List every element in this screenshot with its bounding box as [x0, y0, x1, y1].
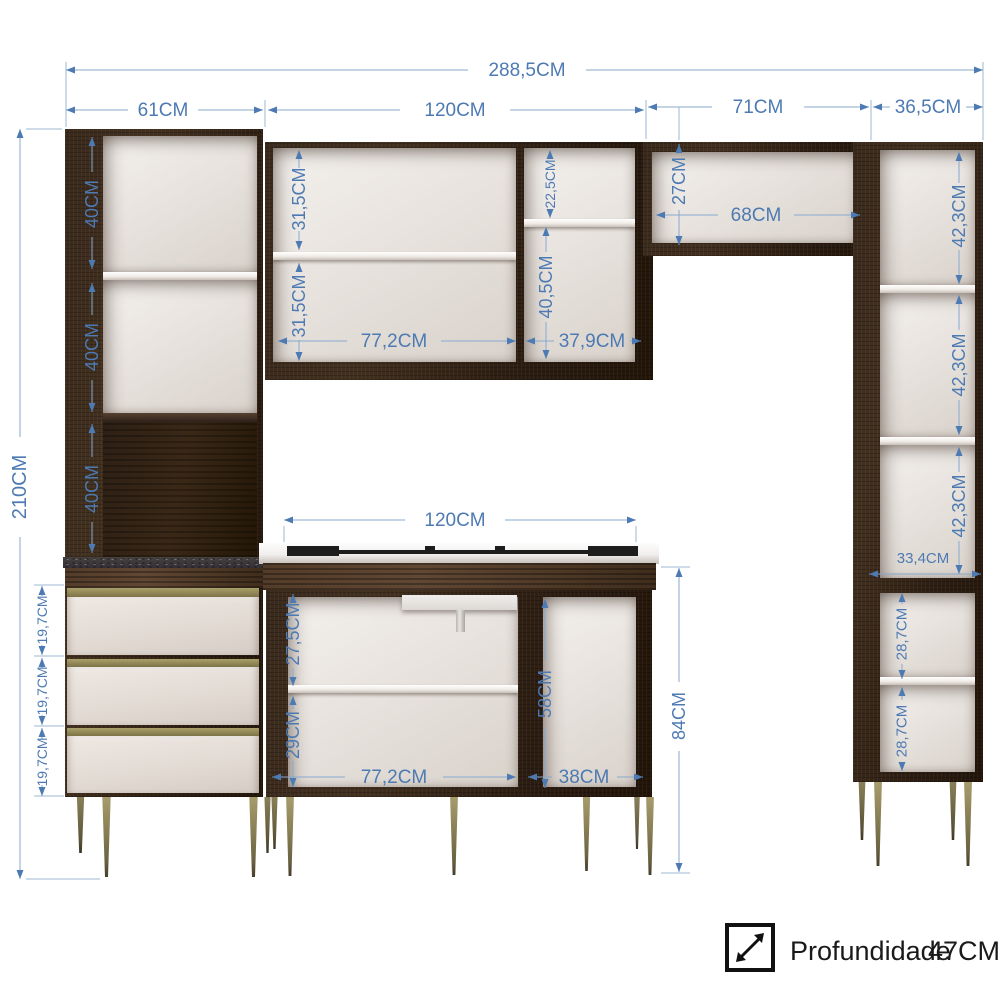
dim-base-width: 120CM: [284, 510, 636, 542]
dim-base-total-height: 84CM: [661, 567, 690, 873]
dim-base-left-width: 77,2CM: [272, 767, 516, 788]
dim-drawer-1-label: 19,7CM: [34, 595, 50, 644]
dim-total-width: 288,5CM: [66, 60, 983, 140]
depth-label: Profundidade: [790, 936, 951, 967]
dim-bridge-height: 27CM: [669, 107, 689, 245]
dim-left-tower-width-label: 61CM: [138, 100, 189, 121]
dim-left-section-2: 40CM: [82, 283, 102, 412]
dim-right-tower-width: 36,5CM: [873, 97, 983, 118]
dim-bridge-width-label: 71CM: [733, 97, 784, 118]
dim-upper-right-top: 22,5CM: [542, 150, 558, 218]
dim-bridge-height-label: 27CM: [669, 157, 689, 205]
dim-upper-right-width: 37,9CM: [526, 331, 641, 352]
dim-upper-right-width-label: 37,9CM: [559, 331, 626, 352]
dim-total-height-label: 210CM: [9, 455, 31, 519]
dim-right-inner-width: 33,4CM: [869, 550, 981, 574]
dim-base-total-height-label: 84CM: [669, 692, 689, 740]
dim-total-width-label: 288,5CM: [488, 60, 565, 81]
dim-upper-right-bottom-label: 40,5CM: [536, 255, 556, 318]
dim-upper-left-top: 31,5CM: [289, 150, 309, 250]
dim-upper-left-width: 77,2CM: [278, 331, 516, 352]
dim-upper-right-top-label: 22,5CM: [542, 159, 558, 208]
dim-base-left-width-label: 77,2CM: [361, 767, 428, 788]
cabinet-dimension-diagram: 288,5CM 61CM 120CM 71CM 36,5CM: [0, 0, 1000, 1000]
dim-drawer-3-label: 19,7CM: [34, 737, 50, 786]
dim-upper-left-width-label: 77,2CM: [361, 331, 428, 352]
dimension-overlay: 288,5CM 61CM 120CM 71CM 36,5CM: [0, 0, 1000, 1000]
dim-right-section-4-label: 28,7CM: [894, 608, 911, 661]
dim-right-section-2-label: 42,3CM: [949, 333, 969, 396]
dim-left-section-3-label: 40CM: [82, 465, 102, 513]
dim-left-section-1-label: 40CM: [82, 180, 102, 228]
dim-base-left-top: 27,5CM: [283, 594, 303, 686]
dim-right-tower-width-label: 36,5CM: [895, 97, 962, 118]
dim-right-section-3: 42,3CM: [949, 447, 969, 574]
dim-base-right-height-label: 58CM: [535, 670, 555, 718]
dim-upper-left-bottom-label: 31,5CM: [289, 274, 309, 337]
dim-upper-cabinet-width: 120CM: [268, 100, 646, 139]
dim-base-left-bottom: 29CM: [283, 696, 303, 787]
dim-upper-left-bottom: 31,5CM: [289, 263, 309, 361]
dim-drawer-2: 19,7CM: [34, 658, 50, 725]
dim-right-section-2: 42,3CM: [949, 295, 969, 435]
diagonal-depth-arrow-icon: [729, 927, 771, 968]
dim-base-left-top-label: 27,5CM: [283, 602, 303, 665]
dim-right-section-5-label: 28,7CM: [894, 705, 911, 758]
dim-left-tower-width: 61CM: [66, 100, 265, 127]
dim-base-width-label: 120CM: [424, 510, 485, 531]
dim-right-inner-width-label: 33,4CM: [897, 550, 950, 567]
dim-right-section-3-label: 42,3CM: [949, 474, 969, 537]
dim-bridge-inner-width: 68CM: [656, 205, 860, 226]
dim-base-left-bottom-label: 29CM: [283, 711, 303, 759]
dim-base-right-width-label: 38CM: [559, 767, 610, 788]
depth-icon-frame: [725, 923, 775, 972]
dim-right-section-4: 28,7CM: [894, 593, 911, 679]
depth-value: 47CM: [928, 936, 1000, 967]
dim-upper-cabinet-width-label: 120CM: [424, 100, 485, 121]
dim-left-section-1: 40CM: [82, 137, 102, 269]
dim-drawer-3: 19,7CM: [34, 728, 50, 796]
dim-bridge-width: 71CM: [648, 97, 871, 140]
dim-upper-left-top-label: 31,5CM: [289, 167, 309, 230]
dim-upper-right-bottom: 40,5CM: [536, 227, 556, 359]
dim-right-section-1-label: 42,3CM: [949, 184, 969, 247]
dim-right-section-5: 28,7CM: [894, 687, 911, 771]
dim-left-section-3: 40CM: [82, 424, 102, 553]
dim-left-section-2-label: 40CM: [82, 323, 102, 371]
dim-drawer-2-label: 19,7CM: [34, 666, 50, 715]
dim-base-right-height: 58CM: [535, 599, 555, 788]
dim-right-section-1: 42,3CM: [949, 152, 969, 284]
dim-bridge-inner-width-label: 68CM: [731, 205, 782, 226]
